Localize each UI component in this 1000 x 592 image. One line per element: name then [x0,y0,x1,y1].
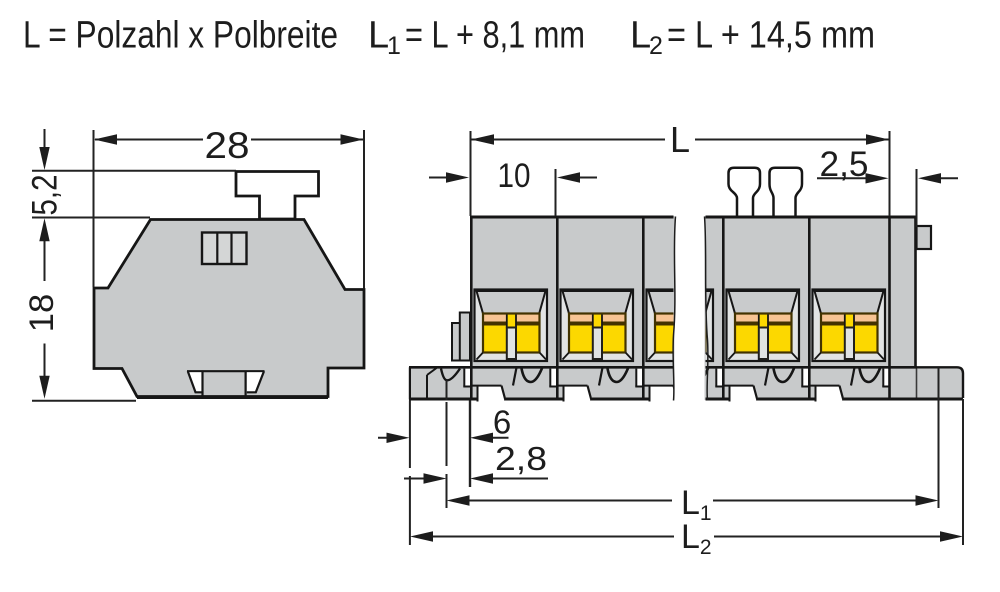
svg-text:L = Polzahl x Polbreite: L = Polzahl x Polbreite [23,15,338,57]
svg-text:L: L [630,15,651,57]
svg-text:2,8: 2,8 [495,440,547,477]
svg-text:6: 6 [493,404,511,441]
svg-text:L: L [368,15,389,57]
svg-text:5,2: 5,2 [26,175,65,216]
svg-text:18: 18 [23,294,61,333]
svg-text:L: L [670,119,690,160]
svg-text:= L + 14,5 mm: = L + 14,5 mm [667,15,875,57]
svg-text:= L + 8,1 mm: = L + 8,1 mm [405,15,585,57]
svg-text:1: 1 [387,32,401,60]
svg-text:10: 10 [498,157,531,195]
svg-text:2: 2 [649,32,663,60]
svg-text:28: 28 [205,125,250,166]
svg-text:2,5: 2,5 [820,145,869,184]
